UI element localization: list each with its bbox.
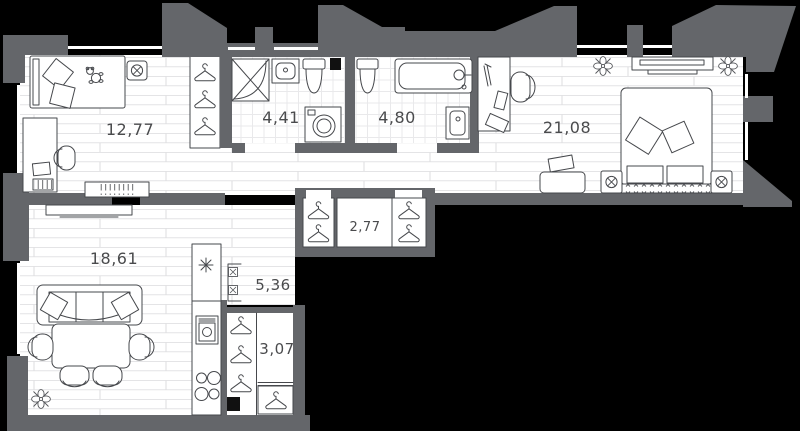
bottom-wall xyxy=(7,415,310,431)
window-top-left xyxy=(68,46,162,49)
entry-door-mark xyxy=(227,397,240,411)
nightstand-left xyxy=(601,171,622,193)
window-right-1 xyxy=(745,74,748,98)
desk-keyboard-keys xyxy=(34,180,52,189)
window-left-bedroom xyxy=(17,85,20,173)
wardrobe-bath-wall xyxy=(220,56,232,148)
area-label-living: 18,61 xyxy=(90,249,138,268)
window-top-master-1 xyxy=(577,45,627,48)
bath-wall-seg1 xyxy=(232,143,245,153)
hall-wall-seg3 xyxy=(433,193,743,205)
floor-plan-svg: 12,77 4,41 xyxy=(0,0,800,431)
bed xyxy=(621,88,712,193)
bath-wall-seg3 xyxy=(437,143,479,153)
dresser-front xyxy=(98,184,136,195)
desk xyxy=(478,57,510,133)
area-label-bathroom: 4,80 xyxy=(378,108,416,127)
tv xyxy=(46,205,132,217)
area-label-master-bedroom: 21,08 xyxy=(543,118,591,137)
window-right-2 xyxy=(745,122,748,160)
window-top-bath-2 xyxy=(274,47,318,50)
sofa xyxy=(37,285,142,325)
desk-item xyxy=(32,162,50,176)
vent-flower-icon xyxy=(594,57,613,76)
vent-flower-icon xyxy=(719,57,738,76)
hall-wall-seg2 xyxy=(140,193,225,205)
entry-hall-right-wall xyxy=(293,305,305,417)
snowflake-icon xyxy=(199,258,213,272)
window-left-living xyxy=(17,263,20,354)
fridge xyxy=(192,244,221,301)
window-top-master-2 xyxy=(643,45,672,48)
right-wall-block xyxy=(743,96,773,122)
kitchen-counter xyxy=(192,301,221,415)
washing-machine xyxy=(305,107,341,142)
area-label-shower-bathroom: 4,41 xyxy=(262,108,300,127)
area-label-hall-closet: 2,77 xyxy=(350,220,381,235)
bathrooms-divider-wall xyxy=(345,56,355,153)
bath-wall-seg2 xyxy=(295,143,397,153)
bed xyxy=(30,56,125,108)
closet-left-door xyxy=(306,190,331,199)
vent-flower-icon xyxy=(32,390,51,409)
sink xyxy=(446,107,469,139)
window-top-bath-1 xyxy=(228,47,255,50)
lamp-icon xyxy=(716,176,727,187)
bathtub xyxy=(395,59,472,93)
lamp-icon xyxy=(606,176,617,187)
area-label-child-bedroom: 12,77 xyxy=(106,120,154,139)
dining-table xyxy=(52,324,130,368)
radiator-valve-icon xyxy=(131,65,142,76)
nightstand-right xyxy=(711,171,732,193)
vent-shaft xyxy=(330,58,341,70)
floor-plan-page: 12,77 4,41 xyxy=(0,0,800,431)
area-label-kitchen: 5,36 xyxy=(255,276,290,294)
area-label-entry-hall: 3,07 xyxy=(259,340,294,358)
bed-headboard-pattern xyxy=(622,185,711,193)
window-pillar xyxy=(627,25,643,57)
room-hall-closet: 2,77 xyxy=(295,188,435,257)
pillow xyxy=(50,83,75,108)
entry-hall-top-wall xyxy=(227,307,293,313)
